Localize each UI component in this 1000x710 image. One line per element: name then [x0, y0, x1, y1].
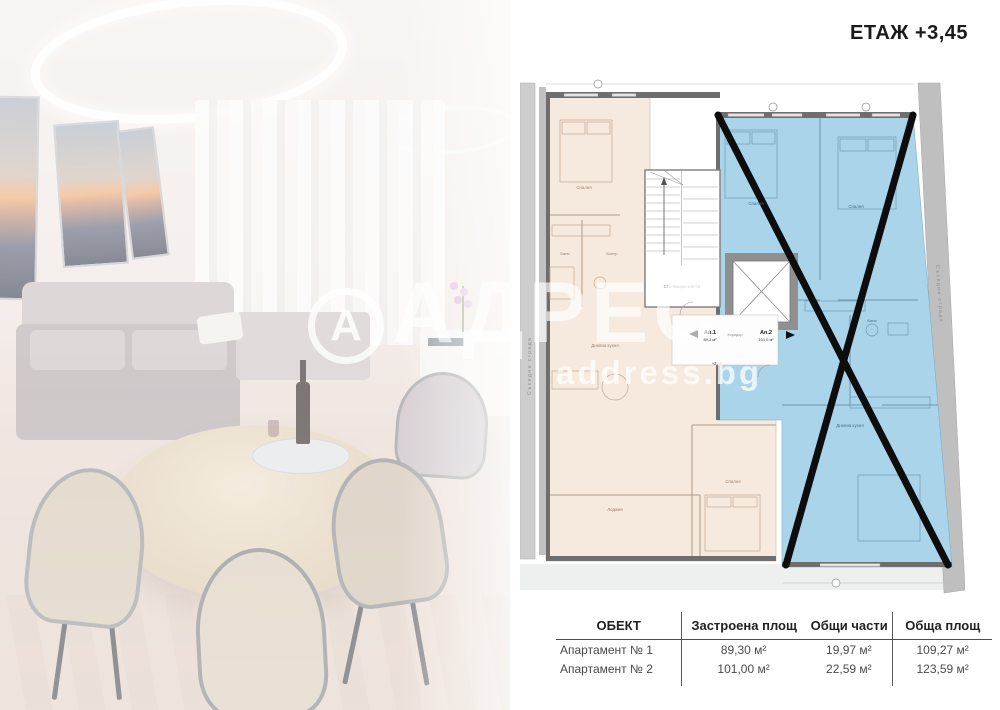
room-label-bath: Баня	[560, 251, 569, 256]
room-label-loggia: Лоджия	[607, 507, 623, 512]
table-header-built-area: Застроена площ	[682, 612, 805, 639]
apartment2-name: Апартамент № 2	[556, 659, 682, 678]
ap1-label: Ап.1	[704, 330, 716, 336]
room-label-bedroom: Спалня	[748, 201, 764, 206]
apartment1-built-area: 89,30 м²	[682, 640, 806, 659]
table-header-common-parts: Общи части	[806, 612, 894, 639]
apartment1-common-parts: 19,97 м²	[805, 640, 893, 659]
apartment2-total-area: 123,59 м²	[893, 659, 992, 678]
floor-plan: Съседна сграда Съседна сграда	[520, 75, 965, 600]
ap2-area: 101,0 м²	[758, 337, 774, 342]
areas-table: ОБЕКТ Застроена площ Общи части Обща пло…	[556, 612, 992, 686]
table-row-apartment-1: Апартамент № 1 89,30 м² 19,97 м² 109,27 …	[556, 640, 992, 659]
stairwell: Стълбищна клетка	[645, 170, 720, 307]
neighbor-left-label: Съседна сграда	[527, 337, 533, 395]
room-label-living-kitchen: Дневна кухня	[836, 423, 864, 428]
apartment1-name: Апартамент № 1	[556, 640, 682, 659]
ground-band	[520, 564, 965, 590]
table-padding-row	[556, 678, 992, 686]
level-marker: +3,45	[712, 361, 723, 366]
table-row-apartment-2: Апартамент № 2 101,00 м² 22,59 м² 123,59…	[556, 659, 992, 678]
room-label-bedroom: Спалня	[725, 479, 741, 484]
neighbor-wall-left: Съседна сграда	[520, 83, 546, 559]
ap2-label: Ап.2	[760, 330, 772, 336]
room-label-living-kitchen: Дневна кухня	[591, 343, 619, 348]
apartment1-total-area: 109,27 м²	[893, 640, 992, 659]
listing-page: ЕТАЖ +3,45 Съседна сграда Съседна сграда	[0, 0, 1000, 710]
table-header-total-area: Обща площ	[893, 612, 992, 639]
room-label-bedroom: Спалня	[576, 185, 592, 190]
room-label-bedroom: Спалня	[848, 204, 864, 209]
photo-edge-fade	[0, 0, 510, 710]
floor-level-title: ЕТАЖ +3,45	[850, 22, 968, 45]
room-label-closet: Килер	[606, 251, 618, 256]
corridor-label: Коридор	[728, 333, 743, 337]
room-label-bath: Баня	[867, 318, 876, 323]
apartment2-common-parts: 22,59 м²	[805, 659, 893, 678]
apartment-photo	[0, 0, 510, 710]
ap1-area: 89,3 м²	[704, 337, 718, 342]
table-header-object: ОБЕКТ	[556, 612, 682, 639]
table-header-row: ОБЕКТ Застроена площ Общи части Обща пло…	[556, 612, 992, 640]
stairwell-label: Стълбищна клетка	[664, 284, 701, 289]
apartment2-built-area: 101,00 м²	[682, 659, 806, 678]
